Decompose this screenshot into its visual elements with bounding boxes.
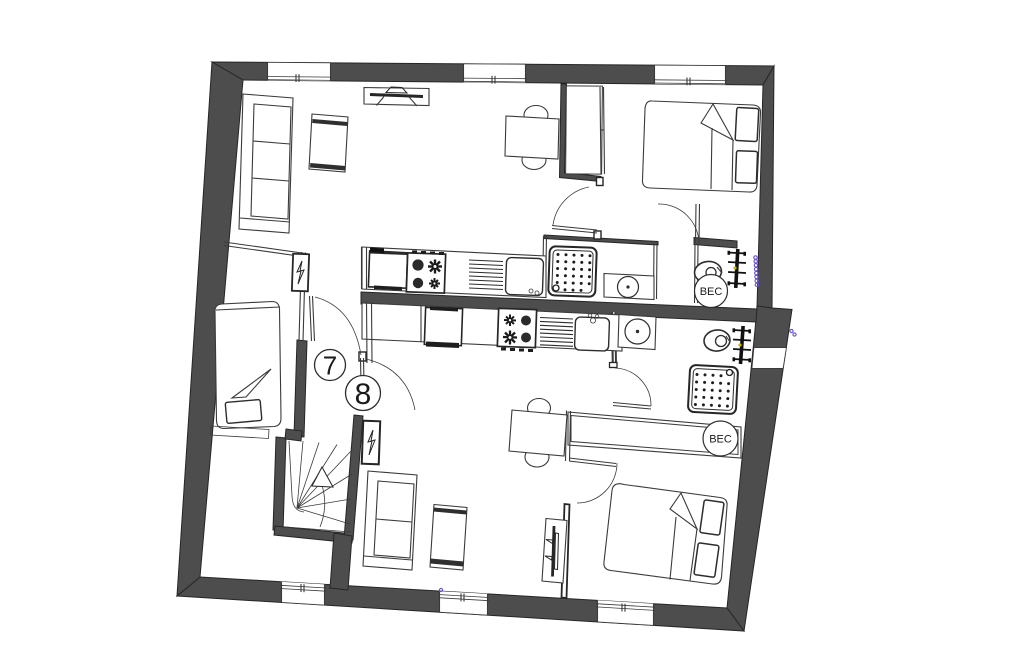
svg-text:8: 8: [355, 378, 372, 411]
svg-text:BEC: BEC: [700, 286, 723, 298]
svg-text:7: 7: [323, 351, 337, 381]
svg-text:BEC: BEC: [709, 434, 732, 446]
